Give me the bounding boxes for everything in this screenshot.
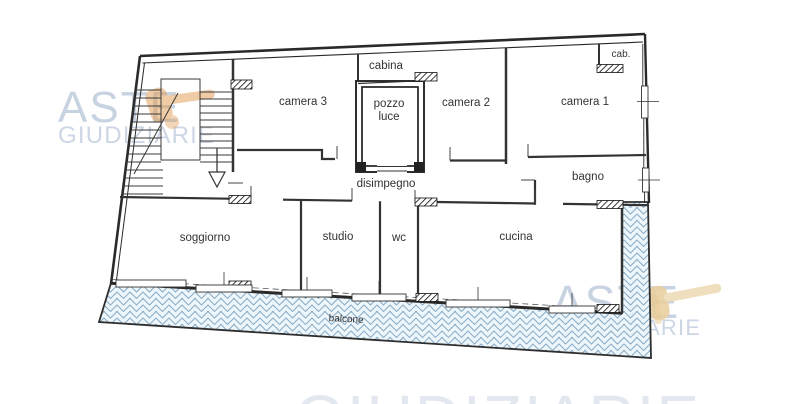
shaft-corner-block (414, 162, 424, 172)
room-label-balcone: balcone (328, 313, 364, 326)
room-label-cabina: cabina (369, 60, 403, 72)
watermark-ghost-bottom: GIUDIZIARIE (295, 382, 701, 404)
room-label-cucina: cucina (499, 231, 533, 243)
room-label-pozzo: pozzo (374, 98, 405, 110)
shaft-corner-block (356, 162, 366, 172)
room-label-camera-3: camera 3 (279, 96, 327, 108)
room-label-camera-2: camera 2 (442, 97, 490, 109)
room-label-bagno: bagno (572, 171, 604, 183)
window-right-camera1 (637, 86, 659, 118)
room-label-wc: wc (391, 232, 406, 244)
floor-plan-svg: ASTE GIUDIZIARIE ASTE GIUDIZIARIE GIUDIZ… (0, 0, 800, 404)
floor-plan-image: ASTE GIUDIZIARIE ASTE GIUDIZIARIE GIUDIZ… (0, 0, 800, 404)
stair-direction-arrow (209, 172, 225, 187)
room-label-camera-1: camera 1 (561, 96, 609, 108)
room-label-soggiorno: soggiorno (180, 232, 231, 244)
window-right-bagno (638, 168, 660, 192)
room-label-studio: studio (323, 231, 354, 243)
room-label-disimpegno: disimpegno (357, 178, 416, 190)
pozzo-luce-shaft (356, 81, 424, 174)
room-label-luce: luce (378, 111, 399, 123)
room-label-cab: cab. (612, 49, 631, 60)
